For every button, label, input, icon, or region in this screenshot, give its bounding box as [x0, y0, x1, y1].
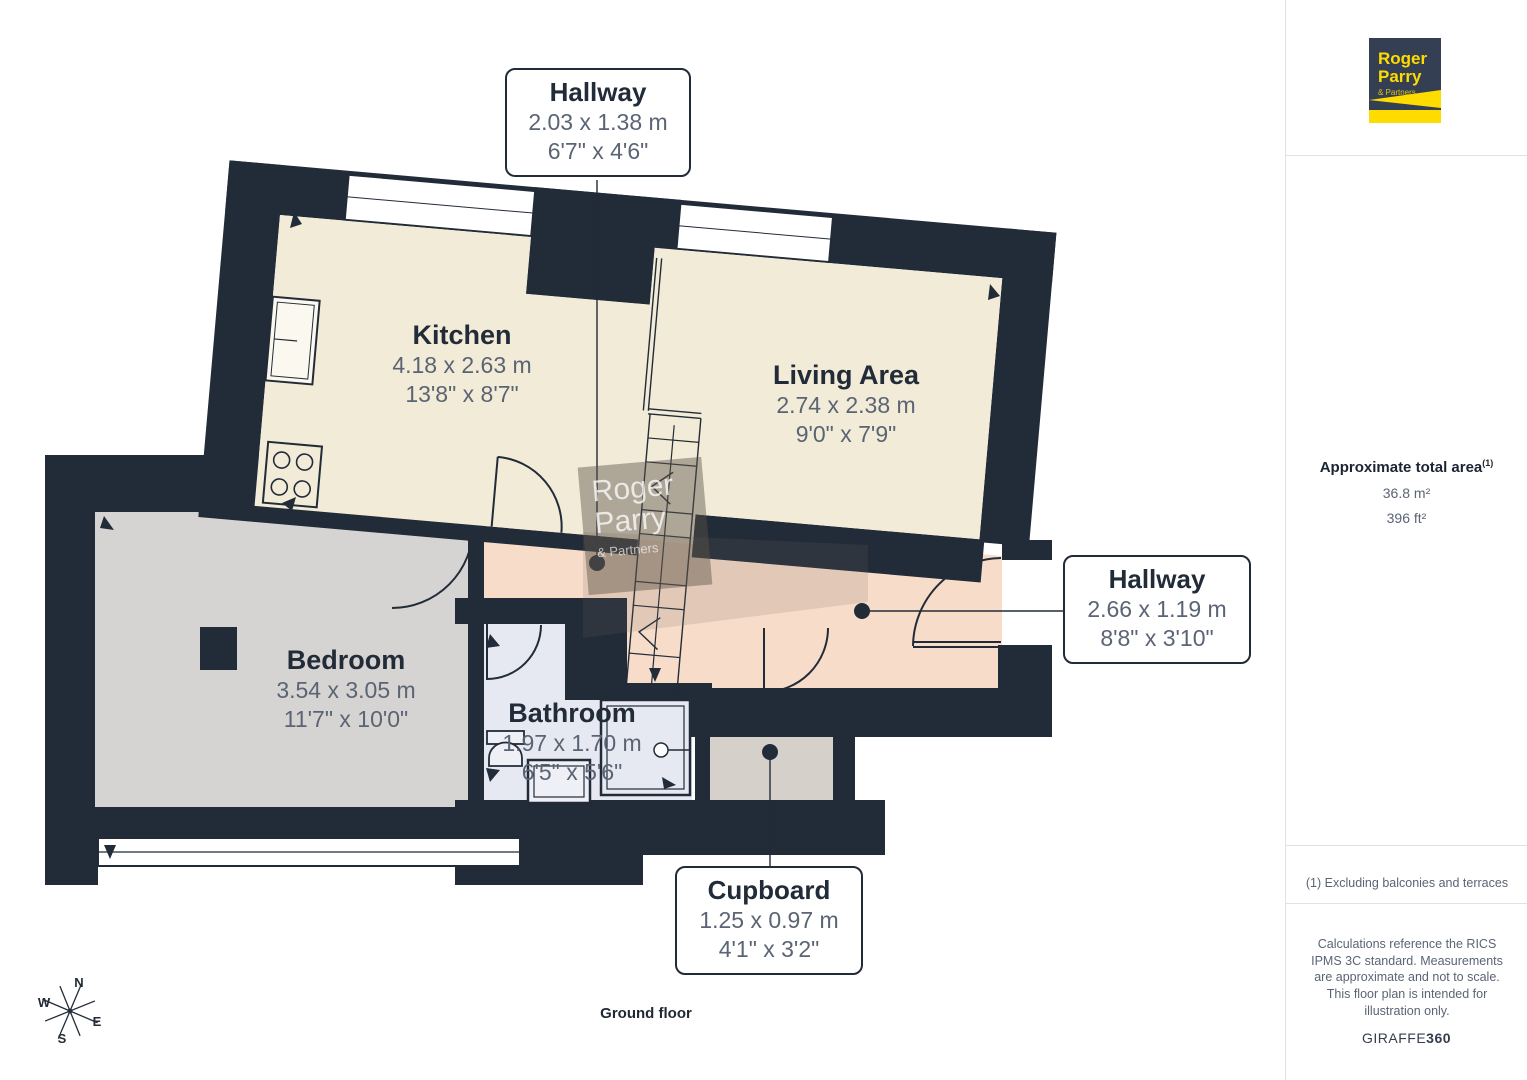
- cupboard-callout: Cupboard 1.25 x 0.97 m 4'1" x 3'2": [675, 866, 863, 975]
- callout-imperial: 4'1" x 3'2": [687, 935, 851, 964]
- callout-metric: 2.66 x 1.19 m: [1075, 595, 1239, 624]
- shower: [601, 700, 690, 795]
- total-area-title: Approximate total area(1): [1286, 458, 1527, 476]
- total-area-block: Approximate total area(1) 36.8 m² 396 ft…: [1286, 458, 1527, 526]
- chimney-breast: [200, 627, 237, 670]
- floorplan-page: N E S W Kitchen 4.18 x 2.63 m 13'8" x 8'…: [0, 0, 1527, 1080]
- watermark: Roger Parry & Partners: [578, 457, 713, 595]
- compass-n: N: [74, 975, 83, 990]
- bedroom-window: [98, 838, 520, 866]
- brand-suffix: 360: [1426, 1030, 1451, 1046]
- sidebar-divider: [1286, 155, 1527, 156]
- callout-name: Hallway: [1075, 565, 1239, 595]
- callout-imperial: 6'7" x 4'6": [517, 137, 679, 166]
- logo-line3: & Partners: [1378, 88, 1416, 97]
- sidebar-divider: [1286, 903, 1527, 904]
- sidebar: Roger Parry & Partners Approximate total…: [1285, 0, 1527, 1080]
- compass-w: W: [38, 995, 51, 1010]
- giraffe360-brand: GIRAFFE360: [1286, 1030, 1527, 1046]
- hallway-right-callout: Hallway 2.66 x 1.19 m 8'8" x 3'10": [1063, 555, 1251, 664]
- compass-s: S: [58, 1031, 67, 1046]
- logo-line1: Roger: [1378, 49, 1428, 68]
- total-area-m2: 36.8 m²: [1286, 485, 1527, 501]
- callout-metric: 1.25 x 0.97 m: [687, 906, 851, 935]
- callout-name: Cupboard: [687, 876, 851, 906]
- bedroom-floor: [95, 512, 468, 807]
- watermark-line2: Parry: [593, 499, 707, 541]
- callout-name: Hallway: [517, 78, 679, 108]
- floor-caption: Ground floor: [600, 1005, 692, 1022]
- callout-metric: 2.03 x 1.38 m: [517, 108, 679, 137]
- agency-logo: Roger Parry & Partners: [1369, 38, 1441, 123]
- total-area-label: Approximate total area: [1320, 459, 1483, 476]
- total-area-ft2: 396 ft²: [1286, 510, 1527, 526]
- callout-imperial: 8'8" x 3'10": [1075, 624, 1239, 653]
- hob: [263, 442, 322, 507]
- logo-line2: Parry: [1378, 67, 1422, 86]
- hallway-top-callout: Hallway 2.03 x 1.38 m 6'7" x 4'6": [505, 68, 691, 177]
- tap: [654, 743, 668, 757]
- toilet: [487, 731, 524, 766]
- disclaimer-text: Calculations reference the RICS IPMS 3C …: [1304, 936, 1510, 1019]
- compass-e: E: [93, 1014, 102, 1029]
- sidebar-divider: [1286, 845, 1527, 846]
- compass: N E S W: [12, 952, 127, 1069]
- brand-name: GIRAFFE: [1362, 1030, 1426, 1046]
- kitchen-unit: [266, 297, 320, 385]
- total-area-footref: (1): [1482, 458, 1493, 468]
- area-footnote: (1) Excluding balconies and terraces: [1296, 876, 1518, 890]
